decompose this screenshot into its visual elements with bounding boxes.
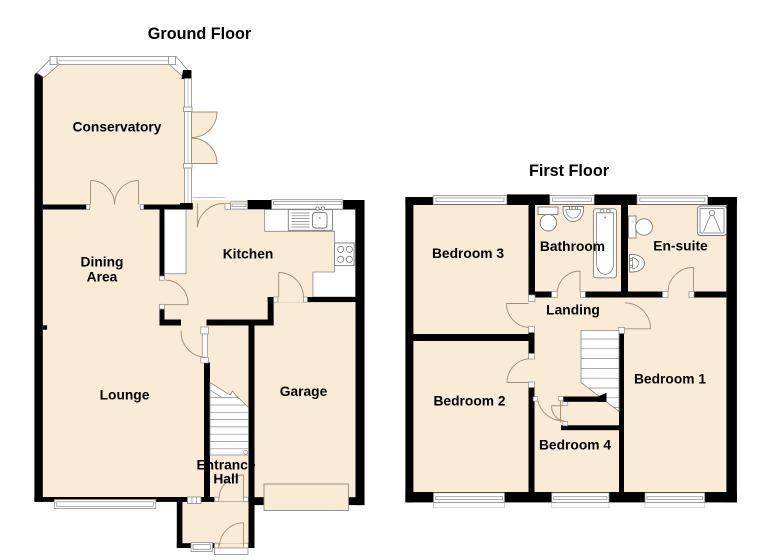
svg-text:Ground Floor: Ground Floor xyxy=(148,25,252,43)
svg-text:Lounge: Lounge xyxy=(100,388,150,403)
svg-text:Bedroom 2: Bedroom 2 xyxy=(433,394,505,409)
svg-text:Kitchen: Kitchen xyxy=(223,247,274,262)
svg-text:Dining: Dining xyxy=(81,255,124,270)
svg-text:Bedroom 1: Bedroom 1 xyxy=(634,372,706,387)
svg-text:En-suite: En-suite xyxy=(653,239,708,254)
svg-text:Conservatory: Conservatory xyxy=(73,120,162,135)
svg-text:Area: Area xyxy=(87,270,118,285)
svg-text:Entrance: Entrance xyxy=(196,458,255,473)
svg-text:Bedroom 4: Bedroom 4 xyxy=(539,438,611,453)
svg-text:Bedroom 3: Bedroom 3 xyxy=(432,246,504,261)
svg-text:Hall: Hall xyxy=(213,472,238,487)
svg-text:First Floor: First Floor xyxy=(529,162,610,180)
svg-text:Garage: Garage xyxy=(280,384,328,399)
svg-text:Landing: Landing xyxy=(546,303,600,318)
svg-text:Bathroom: Bathroom xyxy=(540,239,605,254)
